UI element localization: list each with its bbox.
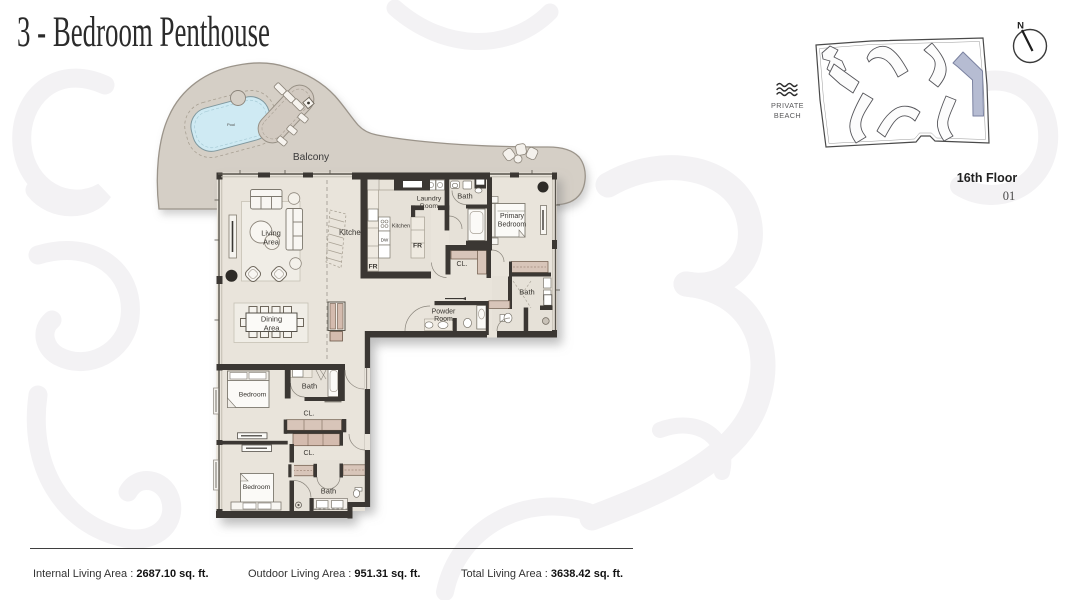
svg-text:CL.: CL. <box>304 450 315 457</box>
svg-text:Room: Room <box>434 316 453 323</box>
svg-text:Laundry: Laundry <box>417 196 442 203</box>
svg-text:Powder: Powder <box>432 309 456 316</box>
svg-text:PRIVATE: PRIVATE <box>771 101 804 110</box>
svg-text:N: N <box>1017 21 1024 32</box>
svg-text:CL.: CL. <box>457 261 468 268</box>
svg-text:Primary: Primary <box>500 213 525 220</box>
svg-text:Internal Living Area : 2687.10: Internal Living Area : 2687.10 sq. ft. <box>33 568 209 580</box>
svg-text:Bath: Bath <box>519 288 534 297</box>
svg-text:FR: FR <box>368 264 377 271</box>
svg-text:Outdoor Living Area : 951.31 s: Outdoor Living Area : 951.31 sq. ft. <box>248 568 420 580</box>
svg-text:Bedroom: Bedroom <box>498 222 527 229</box>
svg-text:Pool: Pool <box>227 122 235 127</box>
svg-text:Kitchen: Kitchen <box>392 224 410 230</box>
svg-text:Area: Area <box>263 238 280 247</box>
svg-text:01: 01 <box>1003 189 1016 203</box>
svg-text:DW: DW <box>381 238 389 243</box>
svg-text:Living: Living <box>261 229 281 238</box>
svg-text:Area: Area <box>264 324 281 333</box>
svg-text:16th Floor: 16th Floor <box>957 171 1018 185</box>
svg-text:FR: FR <box>413 243 422 250</box>
svg-text:Bath: Bath <box>321 487 336 496</box>
svg-text:Total Living Area : 3638.42 sq: Total Living Area : 3638.42 sq. ft. <box>461 568 623 580</box>
svg-text:BEACH: BEACH <box>774 111 801 120</box>
svg-text:Balcony: Balcony <box>293 152 330 163</box>
svg-text:Bedroom: Bedroom <box>243 484 271 491</box>
svg-text:CL.: CL. <box>304 411 315 418</box>
svg-text:3 - Bedroom Penthouse: 3 - Bedroom Penthouse <box>17 8 270 56</box>
svg-text:Dining: Dining <box>261 315 282 324</box>
svg-text:Bedroom: Bedroom <box>239 392 267 399</box>
svg-text:Bath: Bath <box>457 192 472 201</box>
svg-text:Bath: Bath <box>302 382 317 391</box>
